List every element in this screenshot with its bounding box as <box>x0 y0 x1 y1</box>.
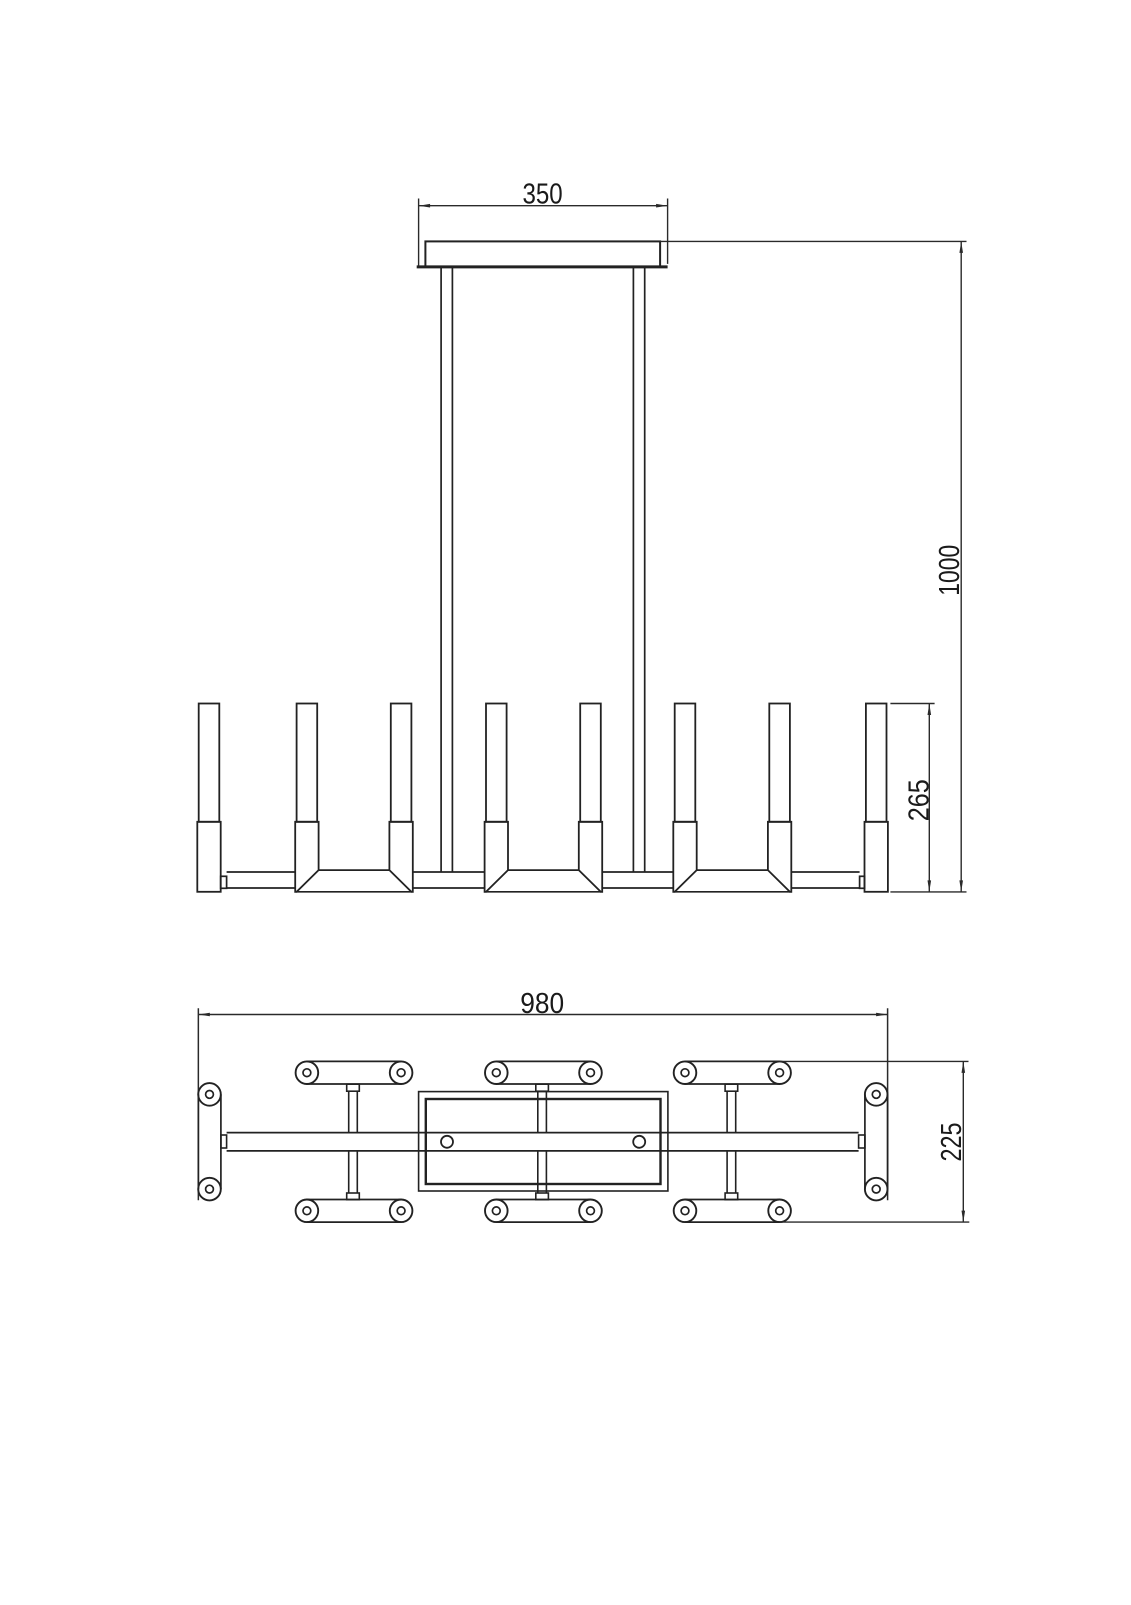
svg-text:1000: 1000 <box>934 545 966 596</box>
svg-text:265: 265 <box>904 779 936 821</box>
svg-text:980: 980 <box>520 988 564 1020</box>
svg-text:225: 225 <box>936 1123 968 1162</box>
svg-text:350: 350 <box>523 178 563 210</box>
